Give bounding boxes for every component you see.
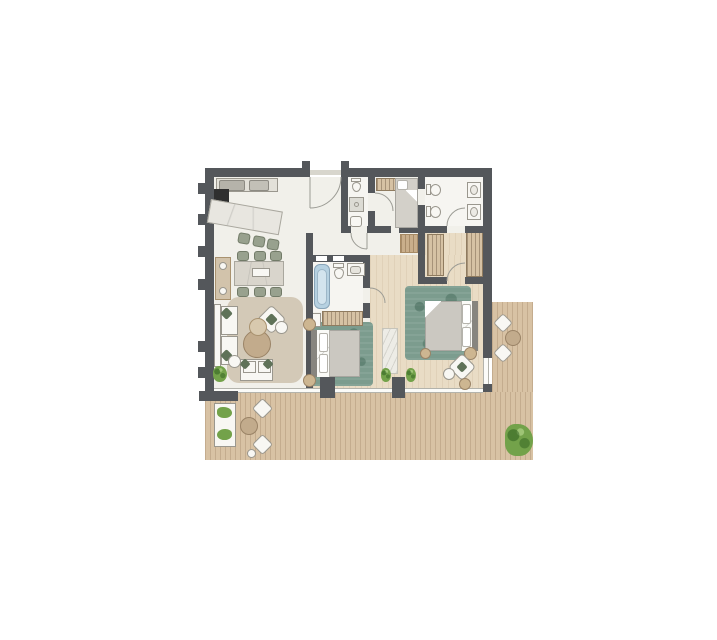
entry-jamb-right <box>341 161 349 177</box>
dining-chair-2 <box>254 251 266 261</box>
west-wall-stub-1 <box>198 183 205 194</box>
southeast-corner-block <box>483 384 492 392</box>
console-tray-1 <box>219 262 227 270</box>
small-bedroom-sheet-fold <box>406 190 417 202</box>
small-bedroom-wardrobe <box>376 178 396 191</box>
bath-niche-1 <box>316 256 327 261</box>
entry-jamb-left <box>302 161 310 177</box>
south-window-band <box>214 388 483 393</box>
corridor-wall-seg-a <box>341 226 351 233</box>
west-wall-stub-2 <box>198 214 205 225</box>
master-bidet-bowl <box>430 206 441 218</box>
bath-right-wall-b <box>363 303 370 318</box>
small-bedroom-pillow <box>397 180 408 190</box>
dining-chair-4 <box>237 287 249 297</box>
wc-left-wall <box>341 177 348 233</box>
closet-wardrobe-right <box>466 231 483 277</box>
master-sink-2-basin <box>470 207 478 217</box>
bar-stool-3 <box>266 238 280 251</box>
dining-chair-1 <box>237 251 249 261</box>
living-room-plant <box>213 366 227 382</box>
wc-shower-drain <box>354 202 359 207</box>
master-duvet-fold <box>425 301 441 319</box>
bar-stool-1 <box>237 232 251 245</box>
master-stool-2 <box>459 378 471 390</box>
corridor-wall-seg-b <box>367 226 391 233</box>
bedroom1-pillow-2 <box>319 354 328 373</box>
console-tray-2 <box>219 287 227 295</box>
closet-bottom-wall-a <box>418 277 447 284</box>
west-wall-stub-5 <box>198 341 205 352</box>
terrace-side-table <box>505 330 521 346</box>
side-table-armchair <box>275 321 288 334</box>
bath-niche-2 <box>333 256 344 261</box>
west-wall-stub-4 <box>198 279 205 290</box>
small-bedroom-left-wall-a <box>368 177 375 193</box>
west-wall-stub-3 <box>198 246 205 257</box>
master-sink-1-basin <box>470 185 478 195</box>
master-pillow-1 <box>462 304 471 324</box>
vanity-sink-central <box>350 266 361 274</box>
dining-chair-3 <box>270 251 282 261</box>
window-plant-2 <box>406 368 416 382</box>
west-wall-foot <box>199 391 238 401</box>
bathtub-basin <box>317 269 327 305</box>
window-plant-1 <box>381 368 391 382</box>
bedroom1-nightstand-1 <box>303 318 316 331</box>
floor-plan-canvas <box>0 0 717 640</box>
bar-stool-2 <box>252 235 266 248</box>
top-wall-right <box>341 168 492 177</box>
bedroom1-nightstand-2 <box>303 374 316 387</box>
terrace-lounge-cushion-2 <box>217 429 232 440</box>
terrace-ottoman <box>247 449 256 458</box>
window-pier-2 <box>392 377 405 398</box>
kitchen-sink <box>249 180 269 191</box>
dining-chair-5 <box>254 287 266 297</box>
closet-wardrobe-left <box>427 234 444 276</box>
wc-basin <box>350 216 362 227</box>
east-wall <box>483 168 492 358</box>
master-pillow-2 <box>462 327 471 347</box>
corridor-wall-seg-d <box>465 226 483 233</box>
dining-centerpiece <box>252 268 270 277</box>
master-nightstand-2 <box>420 348 431 359</box>
terrace-bush <box>505 424 533 456</box>
master-toilet-bowl <box>430 184 441 196</box>
dining-chair-6 <box>270 287 282 297</box>
master-stool-1 <box>443 368 455 380</box>
coffee-table-small <box>249 318 267 336</box>
bedroom1-pillow-1 <box>319 333 328 352</box>
small-bedroom-right-wall-a <box>418 177 425 189</box>
top-wall-left <box>205 168 310 177</box>
master-headboard <box>472 301 478 351</box>
entry-threshold <box>310 170 341 175</box>
terrace-round-table <box>240 417 258 435</box>
closet-bottom-wall-b <box>465 277 483 284</box>
side-table-loveseat <box>228 355 241 368</box>
terrace-lounge-cushion-1 <box>217 407 232 418</box>
west-wall-stub-6 <box>198 367 205 378</box>
bedroom1-wardrobe-row <box>322 311 363 326</box>
